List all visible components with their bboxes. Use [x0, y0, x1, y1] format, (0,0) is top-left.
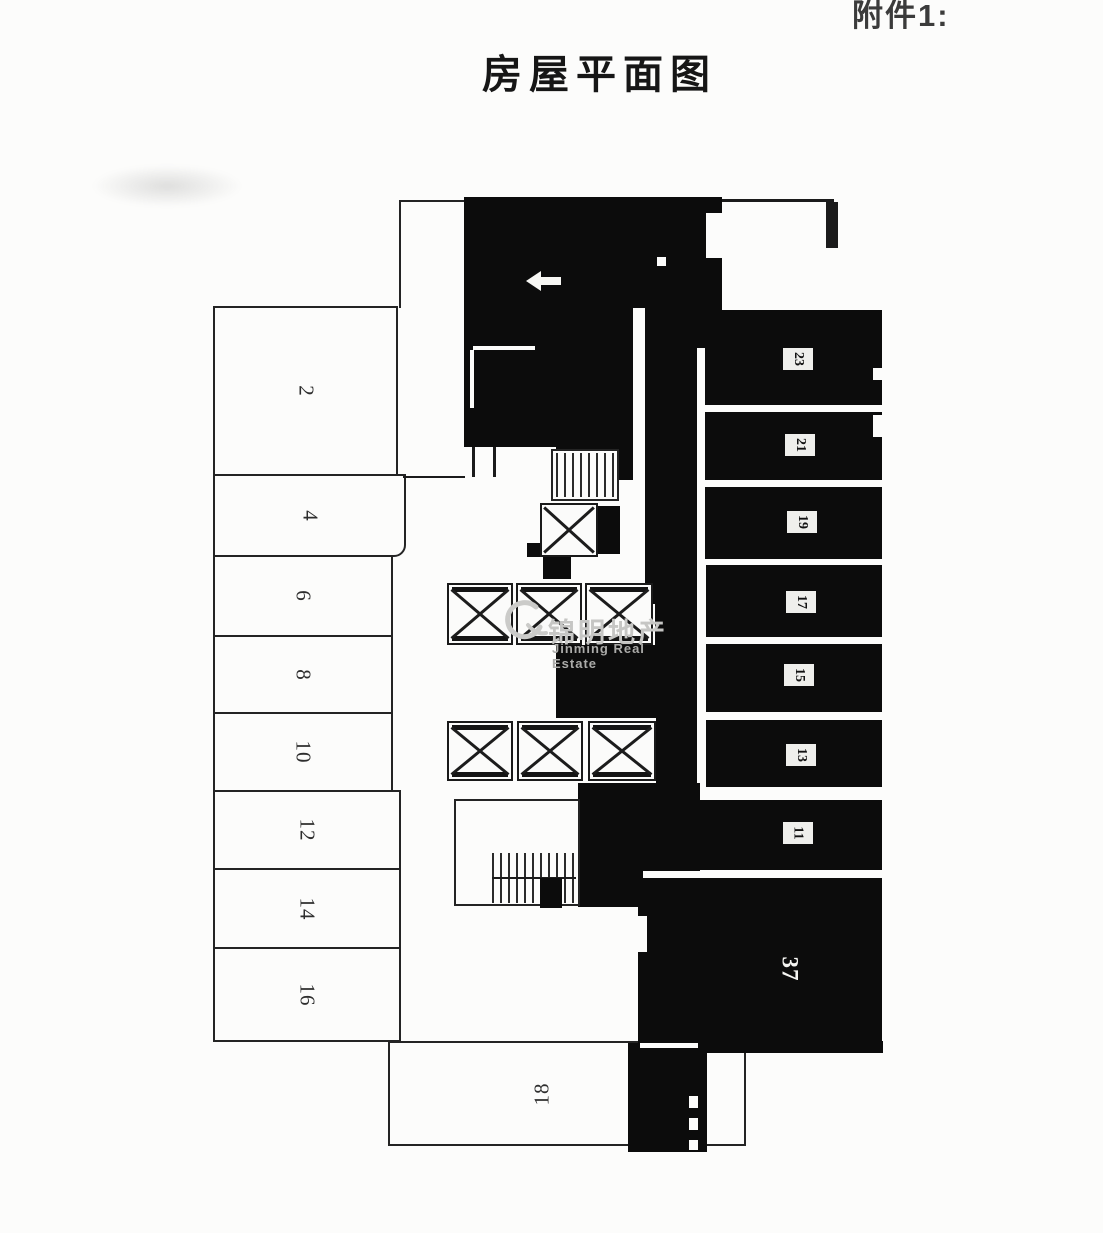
wall-stub	[472, 447, 475, 477]
unit-19-tag: 19	[787, 511, 817, 533]
core-block-lower	[578, 783, 700, 878]
staircase-top	[551, 449, 619, 501]
room-14-number: 14	[295, 897, 320, 920]
inner-wall-gap	[473, 346, 535, 350]
exit-arrow-icon	[541, 277, 561, 285]
elevator-shaft	[517, 721, 583, 781]
scan-smudge	[92, 165, 242, 207]
scanned-floor-plan-page: 附件1: 房屋平面图 2 4 6 8 10 12 14 16 18	[0, 0, 1103, 1233]
unit-11-number: 11	[790, 826, 806, 839]
unit-23: 23	[705, 310, 882, 405]
room-2-number: 2	[293, 385, 318, 397]
room-16: 16	[213, 947, 401, 1042]
wall-gap-line	[640, 1043, 698, 1048]
door-gap	[689, 1096, 698, 1108]
room-2: 2	[213, 306, 398, 476]
unit-11-tag: 11	[783, 822, 813, 844]
lower-core-band	[628, 1043, 707, 1152]
core-block-lower	[578, 878, 643, 907]
unit-15: 15	[706, 644, 882, 712]
unit-17-number: 17	[793, 595, 809, 609]
unit-11: 11	[695, 800, 882, 870]
shaft-post	[527, 543, 540, 557]
room-6: 6	[213, 555, 393, 637]
elevator-shaft	[540, 503, 598, 557]
wall-post	[826, 202, 838, 248]
attachment-label: 附件1:	[852, 0, 950, 35]
inner-wall-gap	[470, 350, 474, 408]
shaft-post	[598, 506, 620, 554]
room-18-number: 18	[530, 1082, 555, 1105]
stair-handrail	[492, 877, 576, 879]
unit-19-number: 19	[794, 515, 810, 529]
lower-wall-strip	[707, 1041, 883, 1053]
unit-21-number: 21	[792, 438, 808, 452]
unit-13: 13	[706, 720, 882, 787]
core-block-mid	[464, 348, 560, 447]
room-12-number: 12	[295, 819, 320, 842]
room-12: 12	[213, 790, 401, 870]
unit-21: 21	[705, 412, 882, 480]
corridor-band	[645, 306, 697, 604]
door-gap	[706, 213, 722, 258]
room-8: 8	[213, 635, 393, 714]
outline-notch	[399, 200, 465, 308]
unit-37: 37	[638, 878, 882, 1045]
corridor-wall-line	[403, 476, 465, 478]
unit-15-number: 15	[791, 668, 807, 682]
unit-15-tag: 15	[784, 664, 814, 686]
unit-23-tag: 23	[783, 348, 813, 370]
page-title: 房屋平面图	[482, 42, 717, 100]
shaft-post	[543, 557, 571, 579]
door-gap	[873, 368, 882, 380]
door-gap	[638, 916, 647, 952]
stair-treads-icon	[556, 453, 614, 497]
room-16-number: 16	[295, 983, 320, 1006]
elevator-x-icon	[519, 723, 581, 779]
wall-stub	[493, 447, 496, 477]
unit-13-number: 13	[793, 748, 809, 762]
corridor-gap	[633, 308, 645, 452]
unit-17: 17	[706, 565, 882, 637]
unit-19: 19	[705, 487, 882, 559]
jinming-logo-icon	[498, 599, 548, 649]
unit-21-tag: 21	[785, 434, 815, 456]
wall-gap-line	[643, 871, 882, 878]
room-8-number: 8	[291, 669, 316, 681]
roof-line	[722, 199, 834, 202]
elevator-x-icon	[590, 723, 654, 779]
room-10: 10	[213, 712, 393, 792]
elevator-shaft	[447, 721, 513, 781]
unit-23-number: 23	[790, 352, 806, 366]
elevator-x-icon	[449, 723, 511, 779]
core-block-center	[656, 718, 697, 787]
wall-post	[540, 878, 562, 908]
room-10-number: 10	[291, 741, 316, 764]
watermark: 锦明地产 Jinming Real Estate	[498, 593, 688, 663]
room-6-number: 6	[291, 590, 316, 602]
door-gap	[657, 257, 666, 266]
door-gap	[873, 415, 882, 437]
room-4: 4	[213, 474, 406, 557]
watermark-name-en: Jinming Real Estate	[552, 641, 688, 671]
elevator-shaft	[588, 721, 656, 781]
room-4-number: 4	[297, 510, 322, 522]
door-gap	[689, 1140, 698, 1150]
unit-37-number: 37	[776, 957, 802, 982]
door-gap	[689, 1118, 698, 1130]
unit-13-tag: 13	[786, 744, 816, 766]
unit-17-tag: 17	[786, 591, 816, 613]
elevator-x-icon	[542, 505, 596, 555]
room-14: 14	[213, 868, 401, 949]
exit-arrow-icon	[526, 271, 541, 291]
unit-37-label: 37	[772, 946, 806, 992]
